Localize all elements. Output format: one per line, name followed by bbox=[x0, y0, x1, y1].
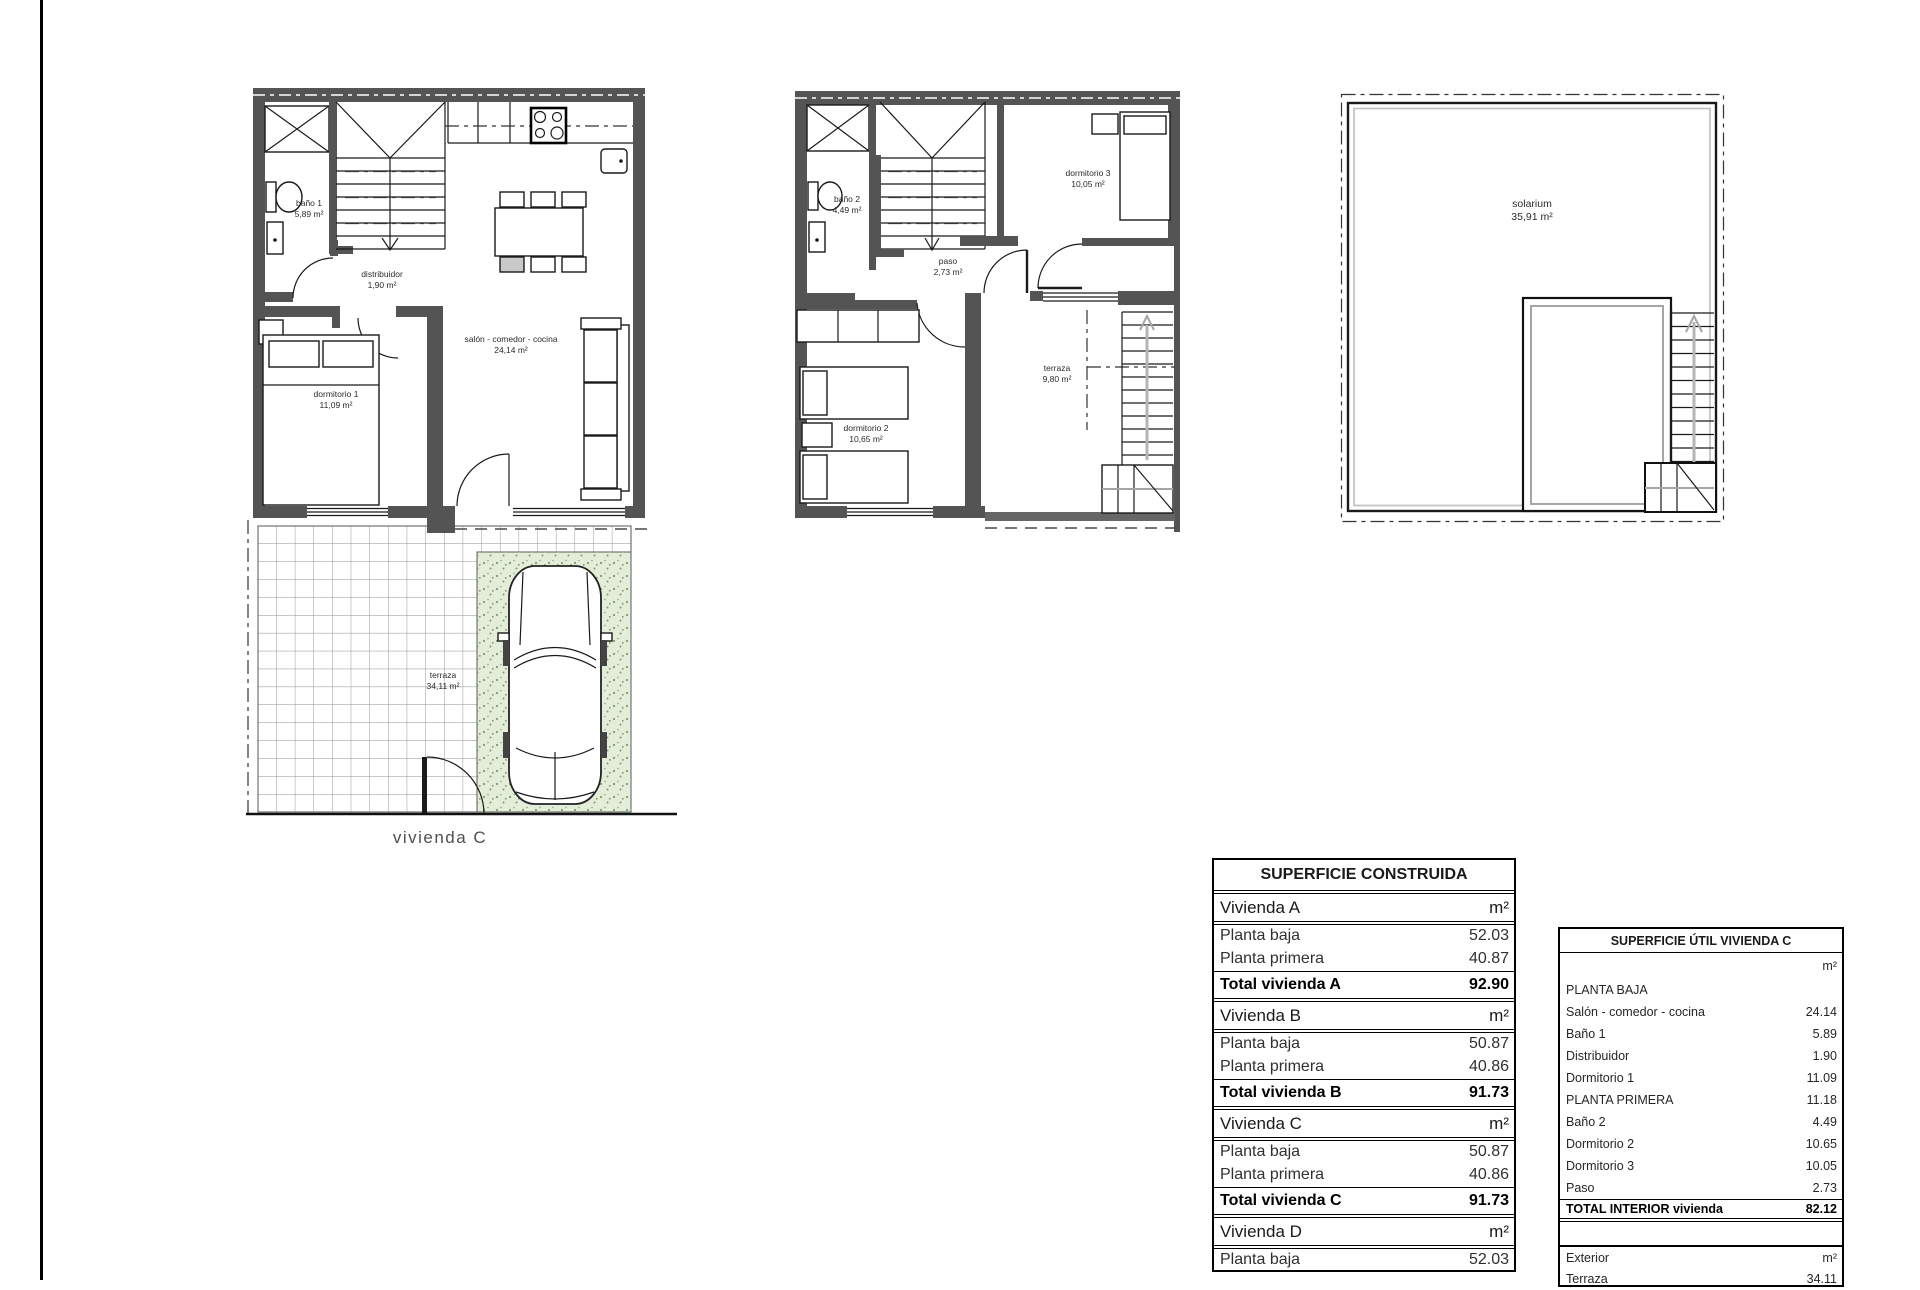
row-value: 52.03 bbox=[1469, 927, 1514, 945]
parked-car bbox=[498, 566, 612, 804]
bedroom1-furniture bbox=[259, 320, 379, 505]
table-row: TOTAL INTERIOR vivienda 82.12 bbox=[1560, 1199, 1842, 1222]
row-label: Total vivienda A bbox=[1214, 976, 1469, 994]
table-row: Terraza 34.11 bbox=[1560, 1268, 1842, 1290]
row-value: 11.09 bbox=[1807, 1071, 1842, 1085]
row-label: Dormitorio 1 bbox=[1560, 1071, 1807, 1085]
row-label: Exterior bbox=[1560, 1251, 1822, 1265]
bedroom3-furniture bbox=[1092, 112, 1170, 220]
row-value: m² bbox=[1489, 1006, 1514, 1026]
row-value: 40.87 bbox=[1469, 950, 1514, 968]
room-label: baño 1 bbox=[296, 198, 322, 208]
architectural-plan-page: { "colors": { "wall": "#545454", "parkin… bbox=[0, 0, 1920, 1280]
table-row: Planta primera 40.86 bbox=[1214, 1162, 1514, 1187]
solarium-plan: solarium 35,91 m² bbox=[1335, 90, 1730, 532]
table-row: Dormitorio 1 11.09 bbox=[1560, 1067, 1842, 1089]
row-label: Planta primera bbox=[1214, 1166, 1469, 1184]
superficie-construida-table: SUPERFICIE CONSTRUIDA Vivienda A m² Plan… bbox=[1212, 858, 1516, 1272]
room-label: distribuidor bbox=[361, 269, 403, 279]
table-row: PLANTA PRIMERA 11.18 bbox=[1560, 1089, 1842, 1111]
table-row: Total vivienda C 91.73 bbox=[1214, 1187, 1514, 1214]
room-label: dormitorio 1 bbox=[314, 389, 359, 399]
room-label: salón - comedor - cocina bbox=[464, 334, 557, 344]
table-row: m² bbox=[1560, 953, 1842, 979]
row-value: m² bbox=[1822, 959, 1842, 973]
dining-set bbox=[495, 192, 586, 272]
room-area: 5,89 m² bbox=[295, 209, 324, 219]
row-label: Baño 2 bbox=[1560, 1115, 1813, 1129]
row-label: Salón - comedor - cocina bbox=[1560, 1005, 1806, 1019]
row-label: Vivienda A bbox=[1214, 898, 1489, 918]
table-row: Paso 2.73 bbox=[1560, 1177, 1842, 1199]
table-row: Planta baja 52.03 bbox=[1214, 921, 1514, 946]
table-row: Planta primera 40.86 bbox=[1214, 1054, 1514, 1079]
table-row: Vivienda B m² bbox=[1214, 998, 1514, 1029]
room-area: 2,73 m² bbox=[934, 267, 963, 277]
superficie-util-table: SUPERFICIE ÚTIL VIVIENDA C m² PLANTA BAJ… bbox=[1558, 927, 1844, 1287]
room-area: 24,14 m² bbox=[494, 345, 528, 355]
row-label: Distribuidor bbox=[1560, 1049, 1813, 1063]
row-value: 34.11 bbox=[1807, 1272, 1842, 1286]
solarium-label: solarium 35,91 m² bbox=[1511, 198, 1553, 223]
row-label: PLANTA PRIMERA bbox=[1560, 1093, 1807, 1107]
row-value: 11.18 bbox=[1807, 1093, 1842, 1107]
row-value: 91.73 bbox=[1469, 1192, 1514, 1210]
room-label: dormitorio 2 bbox=[844, 423, 889, 433]
row-value: m² bbox=[1822, 1251, 1842, 1265]
room-area: 9,80 m² bbox=[1043, 374, 1072, 384]
room-label: solarium bbox=[1512, 198, 1552, 210]
table-row: Planta baja 50.87 bbox=[1214, 1137, 1514, 1162]
first-floor-plan: baño 2 4,49 m² dormitorio 3 10,05 m² pas… bbox=[790, 88, 1190, 540]
ground-floor-plan: baño 1 5,89 m² distribuidor 1,90 m² saló… bbox=[245, 85, 681, 857]
row-label: PLANTA BAJA bbox=[1560, 983, 1837, 997]
room-area: 11,09 m² bbox=[320, 400, 353, 410]
room-area: 1,90 m² bbox=[368, 280, 397, 290]
row-label: Vivienda C bbox=[1214, 1114, 1489, 1134]
table-row: Total vivienda A 92.90 bbox=[1214, 971, 1514, 998]
row-label: Baño 1 bbox=[1560, 1027, 1813, 1041]
table-row: Vivienda D m² bbox=[1214, 1214, 1514, 1245]
row-value: 50.87 bbox=[1469, 1143, 1514, 1161]
table-row: Distribuidor 1.90 bbox=[1560, 1045, 1842, 1067]
row-value: m² bbox=[1489, 1114, 1514, 1134]
table-row: Baño 1 5.89 bbox=[1560, 1023, 1842, 1045]
table-row: Planta baja 52.03 bbox=[1214, 1245, 1514, 1270]
row-label: Planta baja bbox=[1214, 1251, 1469, 1269]
staircase bbox=[874, 102, 1018, 257]
row-value: 24.14 bbox=[1806, 1005, 1842, 1019]
row-label: Planta baja bbox=[1214, 1143, 1469, 1161]
room-area: 35,91 m² bbox=[1511, 211, 1553, 223]
row-label: Paso bbox=[1560, 1181, 1813, 1195]
row-value: 2.73 bbox=[1813, 1181, 1842, 1195]
row-value: 82.12 bbox=[1806, 1202, 1842, 1216]
table-row: Total vivienda B 91.73 bbox=[1214, 1079, 1514, 1106]
room-label: dormitorio 3 bbox=[1066, 168, 1111, 178]
row-value: 40.86 bbox=[1469, 1058, 1514, 1076]
table-row: Salón - comedor - cocina 24.14 bbox=[1560, 1001, 1842, 1023]
row-label: Total vivienda C bbox=[1214, 1192, 1469, 1210]
row-value: 4.49 bbox=[1813, 1115, 1842, 1129]
row-value: 52.03 bbox=[1469, 1251, 1514, 1269]
row-label: Dormitorio 3 bbox=[1560, 1159, 1806, 1173]
row-label: Dormitorio 2 bbox=[1560, 1137, 1806, 1151]
room-area: 34,11 m² bbox=[427, 681, 460, 691]
row-value: m² bbox=[1489, 1222, 1514, 1242]
sofa bbox=[581, 318, 629, 500]
row-label: Planta baja bbox=[1214, 927, 1469, 945]
table-row: Vivienda A m² bbox=[1214, 890, 1514, 921]
room-label: baño 2 bbox=[834, 194, 860, 204]
table-row: Dormitorio 3 10.05 bbox=[1560, 1155, 1842, 1177]
row-label: Planta baja bbox=[1214, 1035, 1469, 1053]
row-label: TOTAL INTERIOR vivienda bbox=[1560, 1202, 1806, 1216]
plan-caption: vivienda C bbox=[393, 828, 487, 847]
row-value: 5.89 bbox=[1813, 1027, 1842, 1041]
table-title: SUPERFICIE ÚTIL VIVIENDA C bbox=[1560, 929, 1842, 953]
table-row: Baño 2 4.49 bbox=[1560, 1111, 1842, 1133]
row-value: 40.86 bbox=[1469, 1166, 1514, 1184]
room-label: terraza bbox=[1044, 363, 1071, 373]
staircase bbox=[336, 102, 445, 250]
room-area: 10,65 m² bbox=[849, 434, 883, 444]
table-row: PLANTA BAJA bbox=[1560, 979, 1842, 1001]
row-label: Vivienda B bbox=[1214, 1006, 1489, 1026]
row-value: 10.65 bbox=[1806, 1137, 1842, 1151]
table-row: Exterior m² bbox=[1560, 1245, 1842, 1268]
row-label: Planta primera bbox=[1214, 1058, 1469, 1076]
table-spacer-row bbox=[1560, 1222, 1842, 1245]
room-label: terraza bbox=[430, 670, 457, 680]
room-area: 10,05 m² bbox=[1071, 179, 1105, 189]
row-value: 50.87 bbox=[1469, 1035, 1514, 1053]
table-row: Vivienda C m² bbox=[1214, 1106, 1514, 1137]
row-label: Total vivienda B bbox=[1214, 1084, 1469, 1102]
terrace-stairs bbox=[1087, 310, 1175, 513]
row-value: 91.73 bbox=[1469, 1084, 1514, 1102]
row-value: 92.90 bbox=[1469, 976, 1514, 994]
room-label: paso bbox=[939, 256, 958, 266]
room-area: 4,49 m² bbox=[833, 205, 862, 215]
kitchen bbox=[445, 102, 633, 173]
row-value: 1.90 bbox=[1813, 1049, 1842, 1063]
table-title: SUPERFICIE CONSTRUIDA bbox=[1214, 860, 1514, 890]
row-value: m² bbox=[1489, 898, 1514, 918]
page-left-border bbox=[40, 0, 43, 1280]
row-label: Planta primera bbox=[1214, 950, 1469, 968]
bedroom2-furniture bbox=[797, 293, 981, 518]
row-value: 10.05 bbox=[1806, 1159, 1842, 1173]
table-row: Dormitorio 2 10.65 bbox=[1560, 1133, 1842, 1155]
table-row: Planta baja 50.87 bbox=[1214, 1029, 1514, 1054]
row-label: Terraza bbox=[1560, 1272, 1807, 1286]
row-label: Vivienda D bbox=[1214, 1222, 1489, 1242]
table-row: Planta primera 40.87 bbox=[1214, 946, 1514, 971]
